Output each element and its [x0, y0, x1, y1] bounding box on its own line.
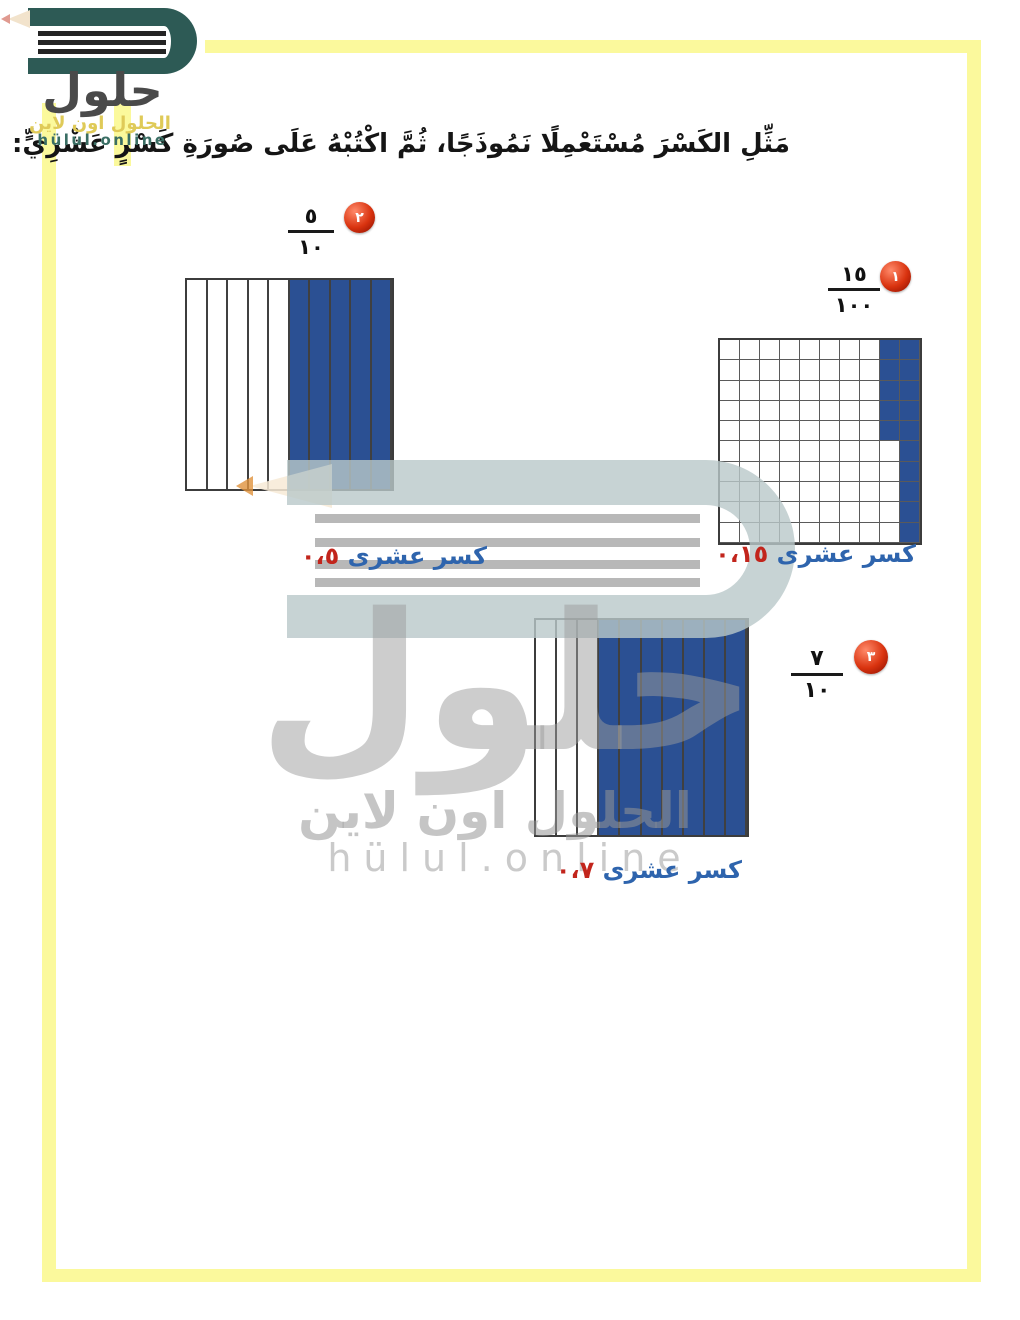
- hundredths-grid-model: [718, 338, 922, 545]
- fraction-denominator: ١٠: [288, 233, 334, 259]
- shaded-column: [599, 620, 620, 835]
- book-page-line-icon: [38, 40, 166, 45]
- empty-cell: [860, 502, 880, 522]
- shaded-column: [726, 620, 747, 835]
- empty-cell: [820, 421, 840, 441]
- empty-cell: [780, 462, 800, 482]
- empty-cell: [820, 482, 840, 502]
- empty-cell: [800, 401, 820, 421]
- answer-line: كسر عشرى ٠،٧: [552, 856, 742, 884]
- empty-column: [578, 620, 599, 835]
- empty-cell: [820, 502, 840, 522]
- empty-cell: [780, 401, 800, 421]
- empty-column: [536, 620, 557, 835]
- shaded-cell: [900, 502, 920, 522]
- watermark-book-line: [315, 514, 700, 523]
- shaded-column: [331, 280, 352, 489]
- empty-cell: [840, 482, 860, 502]
- shaded-column: [642, 620, 663, 835]
- empty-cell: [740, 502, 760, 522]
- empty-cell: [780, 340, 800, 360]
- shaded-column: [372, 280, 393, 489]
- empty-cell: [820, 381, 840, 401]
- empty-cell: [860, 421, 880, 441]
- answer-label: كسر عشرى: [777, 540, 916, 568]
- shaded-column: [351, 280, 372, 489]
- empty-cell: [720, 482, 740, 502]
- empty-cell: [840, 421, 860, 441]
- shaded-column: [705, 620, 726, 835]
- empty-cell: [720, 462, 740, 482]
- empty-cell: [740, 482, 760, 502]
- answer-value: ٠،٧: [552, 856, 594, 884]
- answer-line: كسر عشرى ٠،٥: [297, 542, 487, 570]
- answer-value: ٠،٥: [297, 542, 339, 570]
- shaded-cell: [880, 401, 900, 421]
- empty-cell: [720, 421, 740, 441]
- answer-label: كسر عشرى: [603, 856, 742, 884]
- pencil-icon: [8, 10, 30, 28]
- shaded-column: [310, 280, 331, 489]
- pencil-tip-icon: [1, 14, 10, 24]
- empty-cell: [740, 401, 760, 421]
- empty-cell: [880, 462, 900, 482]
- empty-cell: [820, 441, 840, 461]
- empty-cell: [800, 441, 820, 461]
- empty-cell: [780, 421, 800, 441]
- watermark-book-line: [315, 578, 700, 587]
- shaded-cell: [900, 482, 920, 502]
- empty-cell: [740, 360, 760, 380]
- empty-cell: [820, 401, 840, 421]
- empty-cell: [760, 401, 780, 421]
- empty-cell: [760, 462, 780, 482]
- empty-cell: [760, 381, 780, 401]
- shaded-cell: [900, 360, 920, 380]
- empty-cell: [840, 502, 860, 522]
- shaded-column: [663, 620, 684, 835]
- shaded-cell: [880, 421, 900, 441]
- empty-cell: [780, 360, 800, 380]
- shaded-column: [290, 280, 311, 489]
- shaded-cell: [880, 360, 900, 380]
- empty-cell: [860, 462, 880, 482]
- empty-cell: [760, 482, 780, 502]
- empty-cell: [720, 340, 740, 360]
- empty-cell: [840, 381, 860, 401]
- empty-cell: [820, 360, 840, 380]
- empty-column: [249, 280, 270, 489]
- fraction-numerator: ٧: [791, 646, 843, 676]
- empty-cell: [780, 441, 800, 461]
- empty-cell: [720, 401, 740, 421]
- fraction-5-10: ٥ ١٠: [288, 204, 334, 259]
- fraction-15-100: ١٥ ١٠٠: [828, 262, 880, 317]
- empty-cell: [840, 340, 860, 360]
- problem-number-badge: ١: [880, 261, 911, 292]
- book-page-line-icon: [38, 49, 166, 54]
- empty-column: [187, 280, 208, 489]
- empty-cell: [840, 462, 860, 482]
- fraction-7-10: ٧ ١٠: [791, 646, 843, 703]
- empty-cell: [740, 441, 760, 461]
- empty-cell: [860, 360, 880, 380]
- empty-cell: [880, 502, 900, 522]
- empty-column: [269, 280, 290, 489]
- empty-cell: [800, 340, 820, 360]
- empty-cell: [800, 381, 820, 401]
- book-page-line-icon: [38, 31, 166, 36]
- empty-cell: [780, 482, 800, 502]
- shaded-cell: [900, 441, 920, 461]
- shaded-cell: [900, 421, 920, 441]
- fraction-numerator: ١٥: [828, 262, 880, 291]
- empty-column: [228, 280, 249, 489]
- empty-cell: [800, 502, 820, 522]
- page-border-right: [967, 40, 981, 1282]
- empty-cell: [760, 360, 780, 380]
- empty-cell: [720, 360, 740, 380]
- empty-cell: [740, 421, 760, 441]
- answer-value: ٠،١٥: [711, 540, 768, 568]
- empty-cell: [860, 441, 880, 461]
- empty-cell: [880, 482, 900, 502]
- empty-cell: [860, 381, 880, 401]
- empty-cell: [760, 502, 780, 522]
- empty-cell: [840, 360, 860, 380]
- empty-cell: [860, 401, 880, 421]
- logo-brand-text: حلول: [15, 64, 190, 117]
- tenths-bar-model: [534, 618, 749, 837]
- empty-cell: [840, 401, 860, 421]
- page-border-bottom: [42, 1269, 980, 1282]
- empty-cell: [800, 421, 820, 441]
- empty-cell: [720, 381, 740, 401]
- empty-cell: [800, 482, 820, 502]
- empty-cell: [780, 381, 800, 401]
- empty-cell: [760, 441, 780, 461]
- empty-cell: [840, 441, 860, 461]
- empty-cell: [860, 482, 880, 502]
- shaded-cell: [900, 340, 920, 360]
- logo-domain-text: hülul.online: [10, 131, 195, 149]
- empty-cell: [780, 502, 800, 522]
- shaded-cell: [900, 401, 920, 421]
- page-border-left: [42, 40, 56, 1282]
- empty-cell: [760, 340, 780, 360]
- empty-cell: [800, 360, 820, 380]
- empty-cell: [740, 462, 760, 482]
- shaded-column: [620, 620, 641, 835]
- empty-cell: [820, 462, 840, 482]
- shaded-cell: [880, 340, 900, 360]
- shaded-cell: [900, 462, 920, 482]
- answer-line: كسر عشرى ٠،١٥: [711, 540, 916, 568]
- empty-cell: [880, 441, 900, 461]
- empty-cell: [760, 421, 780, 441]
- empty-cell: [800, 462, 820, 482]
- shaded-column: [684, 620, 705, 835]
- empty-cell: [720, 441, 740, 461]
- problem-number-badge: ٣: [854, 640, 888, 674]
- answer-label: كسر عشرى: [348, 542, 487, 570]
- empty-cell: [740, 381, 760, 401]
- empty-cell: [720, 502, 740, 522]
- worksheet-page: مَثِّلِ الكَسْرَ مُسْتَعْمِلًا نَمُوذَجً…: [0, 0, 1020, 1320]
- problem-number-badge: ٢: [344, 202, 375, 233]
- empty-column: [208, 280, 229, 489]
- empty-cell: [820, 340, 840, 360]
- empty-cell: [740, 340, 760, 360]
- empty-column: [557, 620, 578, 835]
- fraction-numerator: ٥: [288, 204, 334, 233]
- shaded-cell: [880, 381, 900, 401]
- fraction-denominator: ١٠٠: [828, 291, 880, 317]
- tenths-bar-model: [185, 278, 394, 491]
- shaded-cell: [900, 381, 920, 401]
- fraction-denominator: ١٠: [791, 676, 843, 703]
- empty-cell: [860, 340, 880, 360]
